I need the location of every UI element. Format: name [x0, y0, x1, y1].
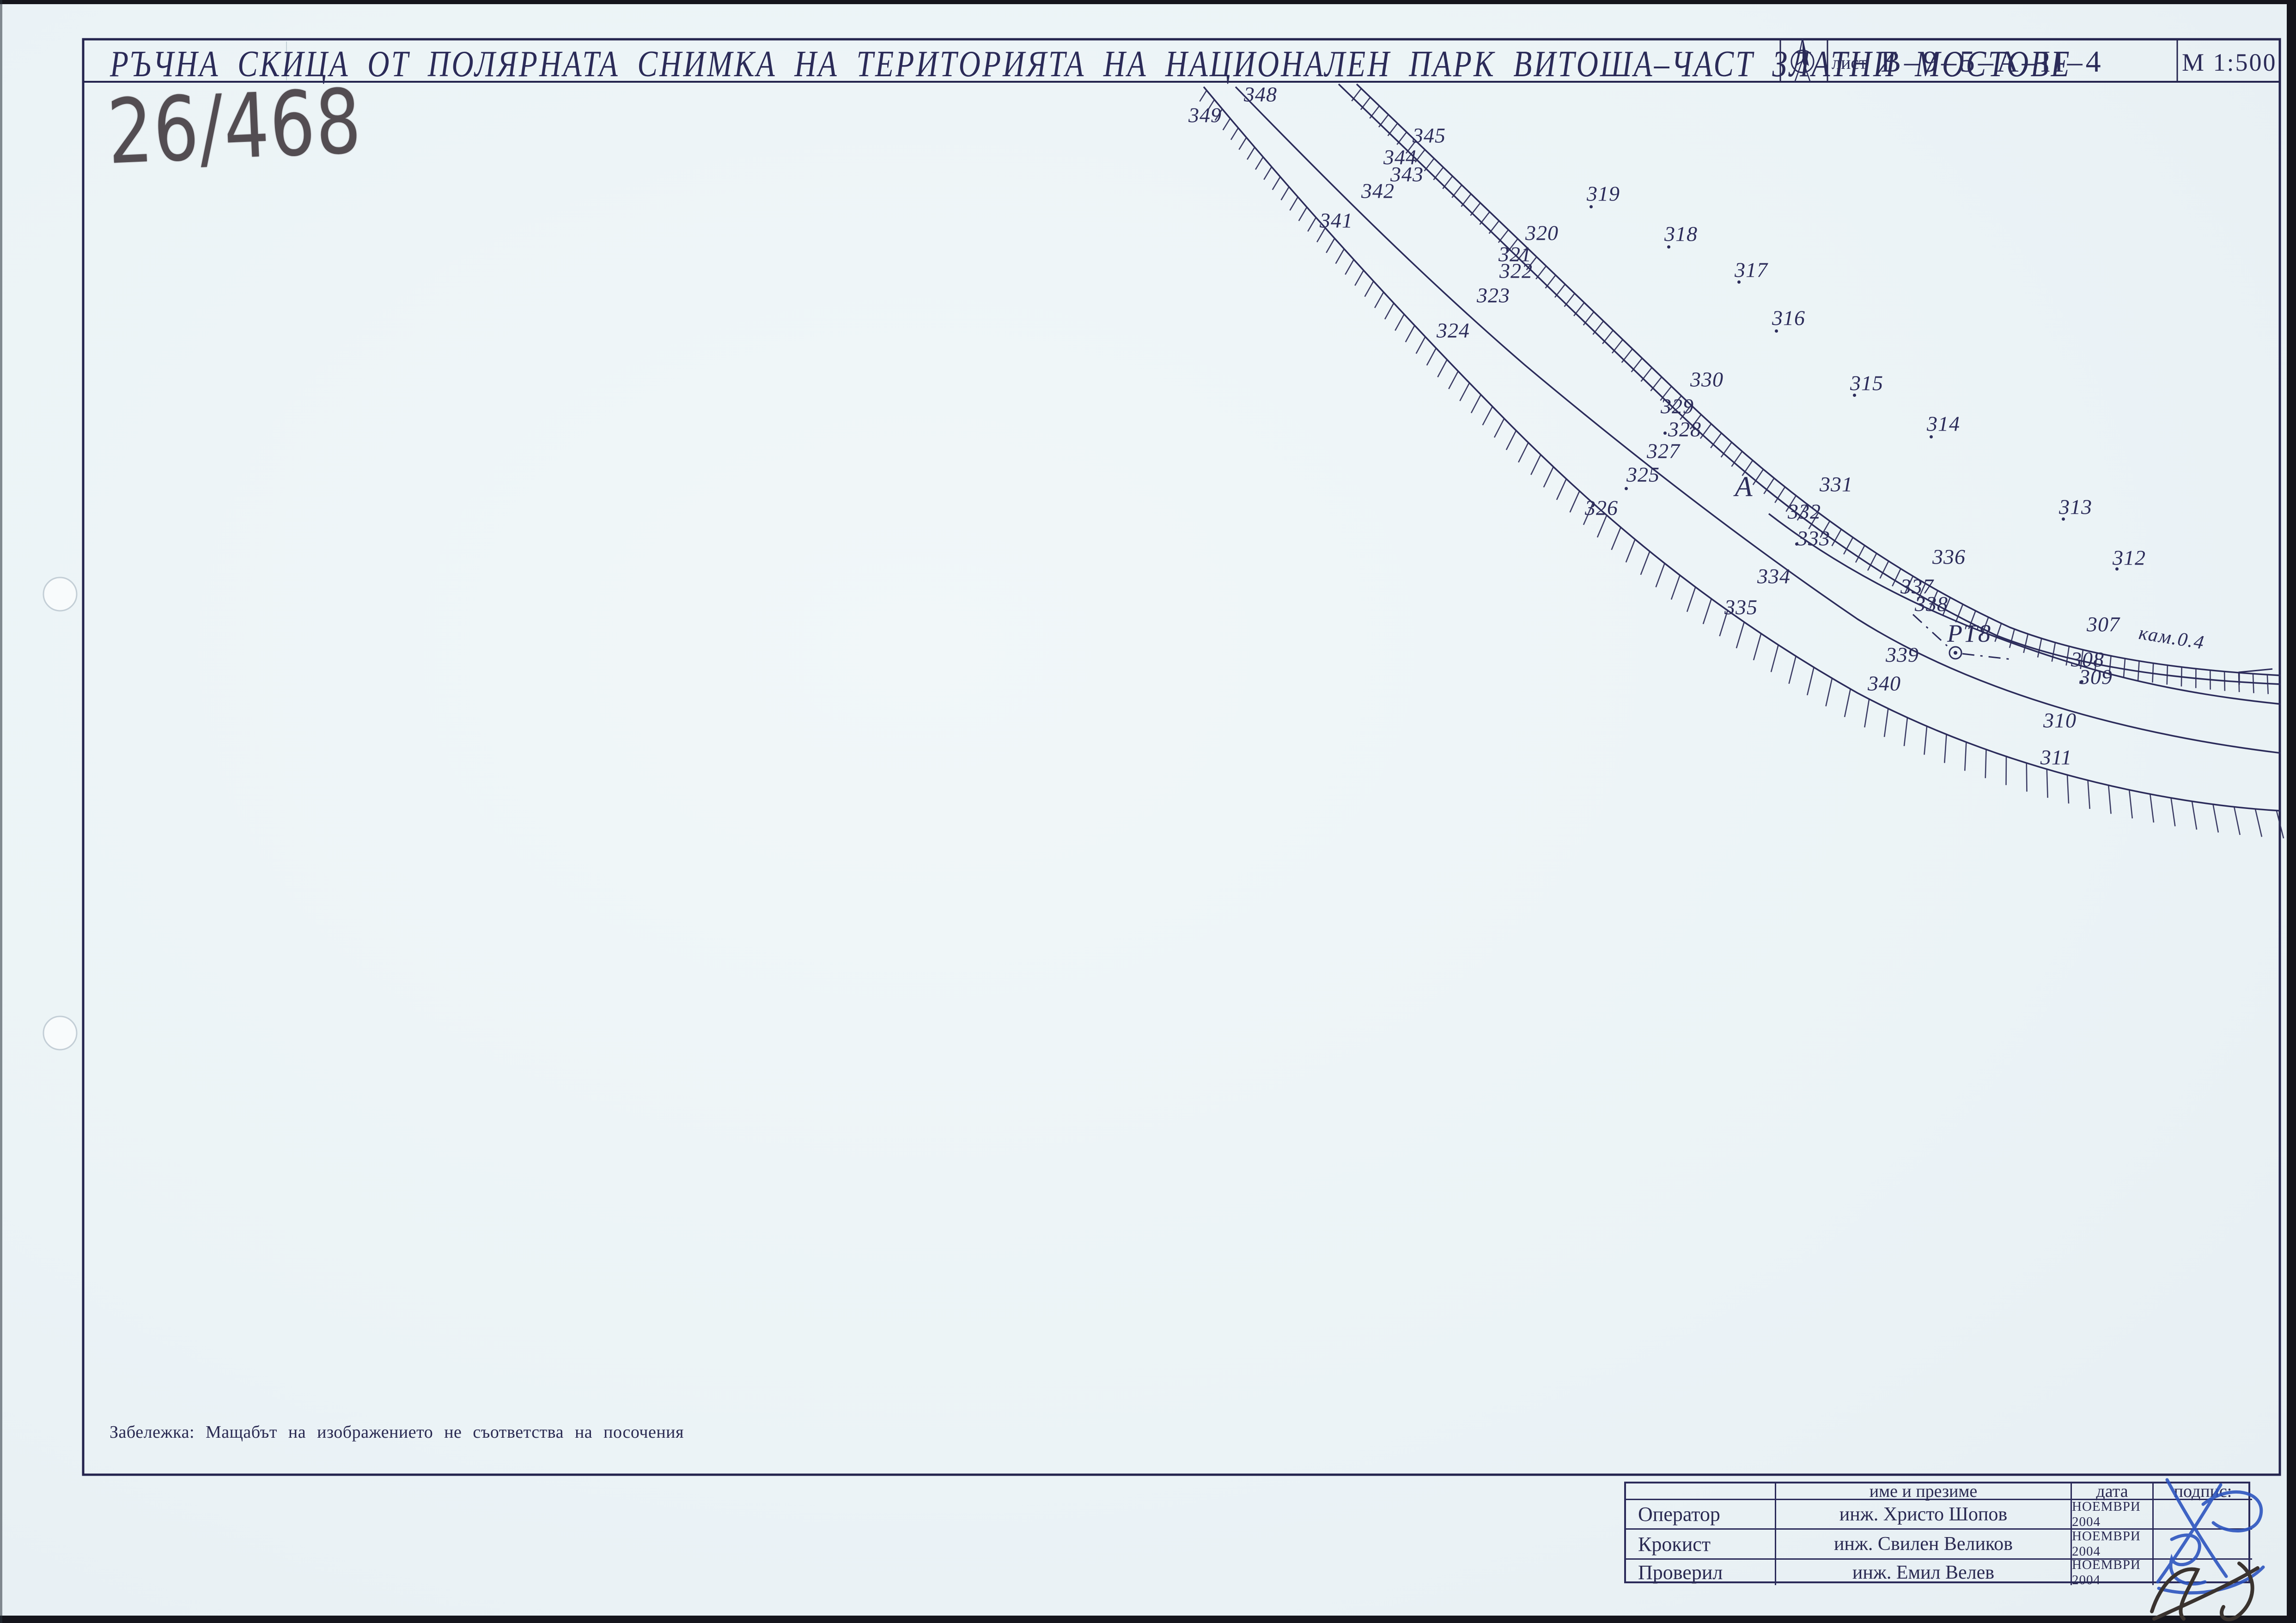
stone-wall-lower-line — [1339, 84, 2281, 684]
point-label: 340 — [1868, 671, 1901, 695]
point-label: 348 — [1244, 82, 1277, 106]
point-label: 330 — [1690, 367, 1724, 391]
row-operator-date: НОЕМВРИ 2004 — [2072, 1500, 2154, 1530]
handwritten-inventory-number: 26/468 — [105, 70, 364, 184]
point-dot — [1667, 245, 1670, 249]
row-checker-date: НОЕМВРИ 2004 — [2072, 1560, 2154, 1585]
point-label: 310 — [2043, 708, 2077, 732]
point-label: 332 — [1788, 499, 1821, 523]
sheet-label: лист — [1832, 52, 1867, 73]
point-label: 311 — [2040, 745, 2072, 769]
point-label: 323 — [1477, 283, 1510, 307]
punch-holes — [43, 577, 77, 1050]
drawing-border — [83, 39, 2280, 1475]
point-label: 331 — [1820, 472, 1853, 496]
point-label: 326 — [1585, 495, 1618, 520]
point-dot — [1663, 432, 1667, 435]
sheet-number: В–9–5–А–II–4 — [1881, 44, 2104, 79]
point-label: 334 — [1757, 564, 1791, 588]
point-label: 309 — [2079, 664, 2113, 689]
point-label: 313 — [2059, 494, 2092, 519]
col-header-date: дата — [2072, 1483, 2154, 1500]
point-label: 343 — [1390, 162, 1424, 186]
scan-edges — [0, 0, 2296, 1623]
point-dot — [2080, 680, 2083, 683]
signature-table: име и презиме дата подпис: Оператор инж.… — [1624, 1482, 2250, 1583]
point-label: 339 — [1886, 642, 1919, 667]
point-dot — [2062, 517, 2065, 521]
point-label: 319 — [1587, 181, 1620, 206]
point-label: 307 — [2087, 612, 2120, 636]
row-draftsman-name: инж. Свилен Великов — [1776, 1530, 2072, 1560]
point-label: 329 — [1661, 394, 1694, 418]
point-label: 336 — [1932, 544, 1966, 569]
point-label: 328 — [1668, 417, 1701, 441]
point-label: 317 — [1735, 257, 1768, 282]
stone-wall-upper-line — [1357, 84, 2281, 675]
row-checker-signature-cell — [2154, 1560, 2252, 1585]
map-linework — [0, 0, 2296, 1623]
row-checker-role: Проверил — [1626, 1560, 1776, 1585]
point-label: 315 — [1850, 371, 1883, 395]
station-label: РТ8 — [1947, 619, 1991, 648]
point-dot — [1930, 435, 1933, 438]
col-header-name: име и презиме — [1776, 1483, 2072, 1500]
row-operator-role: Оператор — [1626, 1500, 1776, 1530]
area-label: А — [1735, 471, 1753, 504]
row-checker-name: инж. Емил Велев — [1776, 1560, 2072, 1585]
point-label: 349 — [1188, 103, 1222, 127]
row-draftsman-date: НОЕМВРИ 2004 — [2072, 1530, 2154, 1560]
map-scale: М 1:500 — [2182, 48, 2277, 77]
page-title: РЪЧНА СКИЦА ОТ ПОЛЯРНАТА СНИМКА НА ТЕРИТ… — [110, 43, 2071, 85]
footnote: Забележка: Мащабът на изображението не с… — [110, 1422, 684, 1442]
row-operator-name: инж. Христо Шопов — [1776, 1500, 2072, 1530]
point-label: 345 — [1413, 123, 1446, 147]
point-dot — [1775, 329, 1778, 333]
scanned-survey-sheet: РЪЧНА СКИЦА ОТ ПОЛЯРНАТА СНИМКА НА ТЕРИТ… — [0, 0, 2296, 1623]
point-dot — [1795, 542, 1798, 546]
point-label: 324 — [1437, 318, 1470, 342]
point-label: 314 — [1927, 411, 1960, 436]
table-corner-cell — [1626, 1483, 1776, 1500]
row-draftsman-role: Крокист — [1626, 1530, 1776, 1560]
lower-edge-line — [1769, 514, 2281, 704]
point-label: 335 — [1724, 595, 1758, 619]
point-dot — [1625, 487, 1628, 490]
col-header-signature: подпис: — [2154, 1483, 2252, 1500]
row-draftsman-signature-cell — [2154, 1530, 2252, 1560]
point-dot — [1590, 205, 1593, 208]
point-dot — [1853, 394, 1856, 397]
row-operator-signature-cell — [2154, 1500, 2252, 1530]
point-label: 333 — [1797, 526, 1830, 550]
point-label: 312 — [2113, 545, 2146, 570]
point-label: 322 — [1499, 258, 1533, 283]
point-dot — [2115, 567, 2119, 571]
point-label: 338 — [1915, 591, 1948, 616]
point-label: 342 — [1361, 178, 1395, 203]
point-label: 341 — [1320, 208, 1353, 232]
point-label: 316 — [1772, 305, 1805, 330]
point-label: 318 — [1664, 221, 1698, 246]
point-label: 327 — [1647, 438, 1680, 463]
point-label: 325 — [1626, 462, 1660, 486]
point-dot — [1737, 280, 1741, 284]
